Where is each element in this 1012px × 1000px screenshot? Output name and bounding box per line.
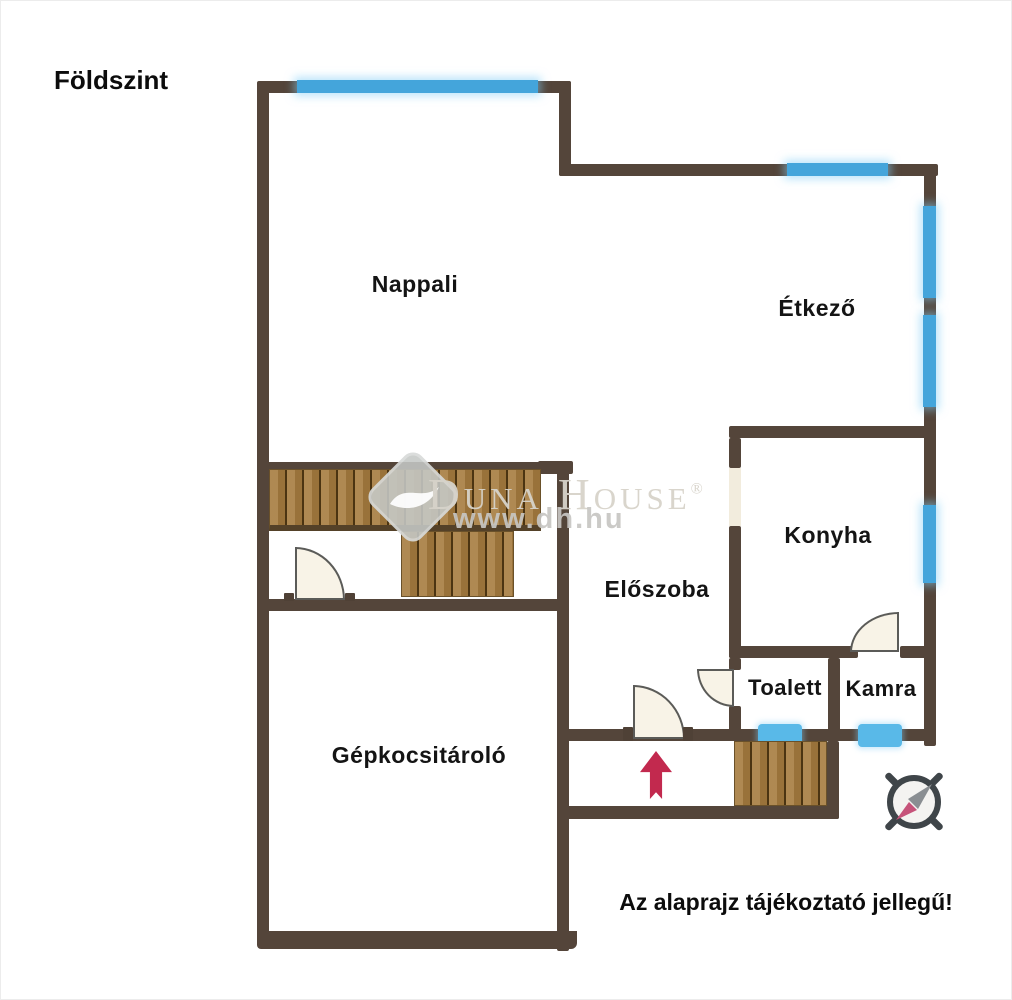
door-toalett-swing [697, 669, 734, 707]
watermark-registered-mark: ® [691, 480, 703, 497]
room-label-etkezo: Étkező [778, 295, 855, 322]
room-label-konyha: Konyha [784, 522, 871, 549]
room-label-garage: Gépkocsitároló [332, 742, 506, 769]
room-label-toalett: Toalett [748, 675, 822, 701]
disclaimer-text: Az alaprajz tájékoztató jellegű! [619, 889, 953, 916]
stairs-lower-flight [401, 531, 514, 597]
wall-konyha-bottom-right [900, 646, 936, 658]
entrance-arrow-icon [640, 751, 672, 799]
room-label-kamra: Kamra [846, 676, 917, 702]
window-etkezo-right-1 [923, 206, 936, 298]
watermark-url: www.dh.hu [453, 503, 625, 536]
wall-konyha-left-upper [729, 438, 741, 468]
wall-garage-bottom [257, 931, 577, 949]
door-garage-post-left [284, 593, 294, 601]
window-kamra-bottom [858, 724, 902, 747]
wall-garage-top [257, 599, 569, 611]
floor-plan: Földszint Nappali Étkező Konyha Elő [0, 0, 1012, 1000]
door-front-swing [633, 685, 685, 739]
window-konyha-right [923, 505, 936, 583]
compass-icon [876, 764, 952, 840]
stairs-entrance [734, 741, 827, 806]
doorway-konyha [729, 468, 741, 526]
wall-konyha-top [729, 426, 936, 438]
door-kamra-swing [850, 612, 899, 652]
room-label-nappali: Nappali [372, 271, 459, 298]
door-front-post-left [623, 727, 633, 741]
wall-nappali-right [559, 81, 571, 176]
window-nappali-top [297, 80, 538, 93]
room-label-eloszoba: Előszoba [605, 576, 710, 603]
wall-konyha-left-lower [729, 526, 741, 658]
compass-needle [876, 764, 952, 840]
wall-entry-bottom [557, 806, 839, 819]
door-garage-post-right [345, 593, 355, 601]
window-etkezo-top [787, 163, 888, 176]
wall-konyha-bottom-left [729, 646, 858, 658]
window-etkezo-right-2 [923, 315, 936, 407]
door-front-post-right [683, 727, 693, 741]
door-garage-swing [295, 547, 345, 600]
floor-title: Földszint [54, 65, 168, 96]
wall-left [257, 81, 269, 949]
wall-entry-right [827, 741, 839, 819]
